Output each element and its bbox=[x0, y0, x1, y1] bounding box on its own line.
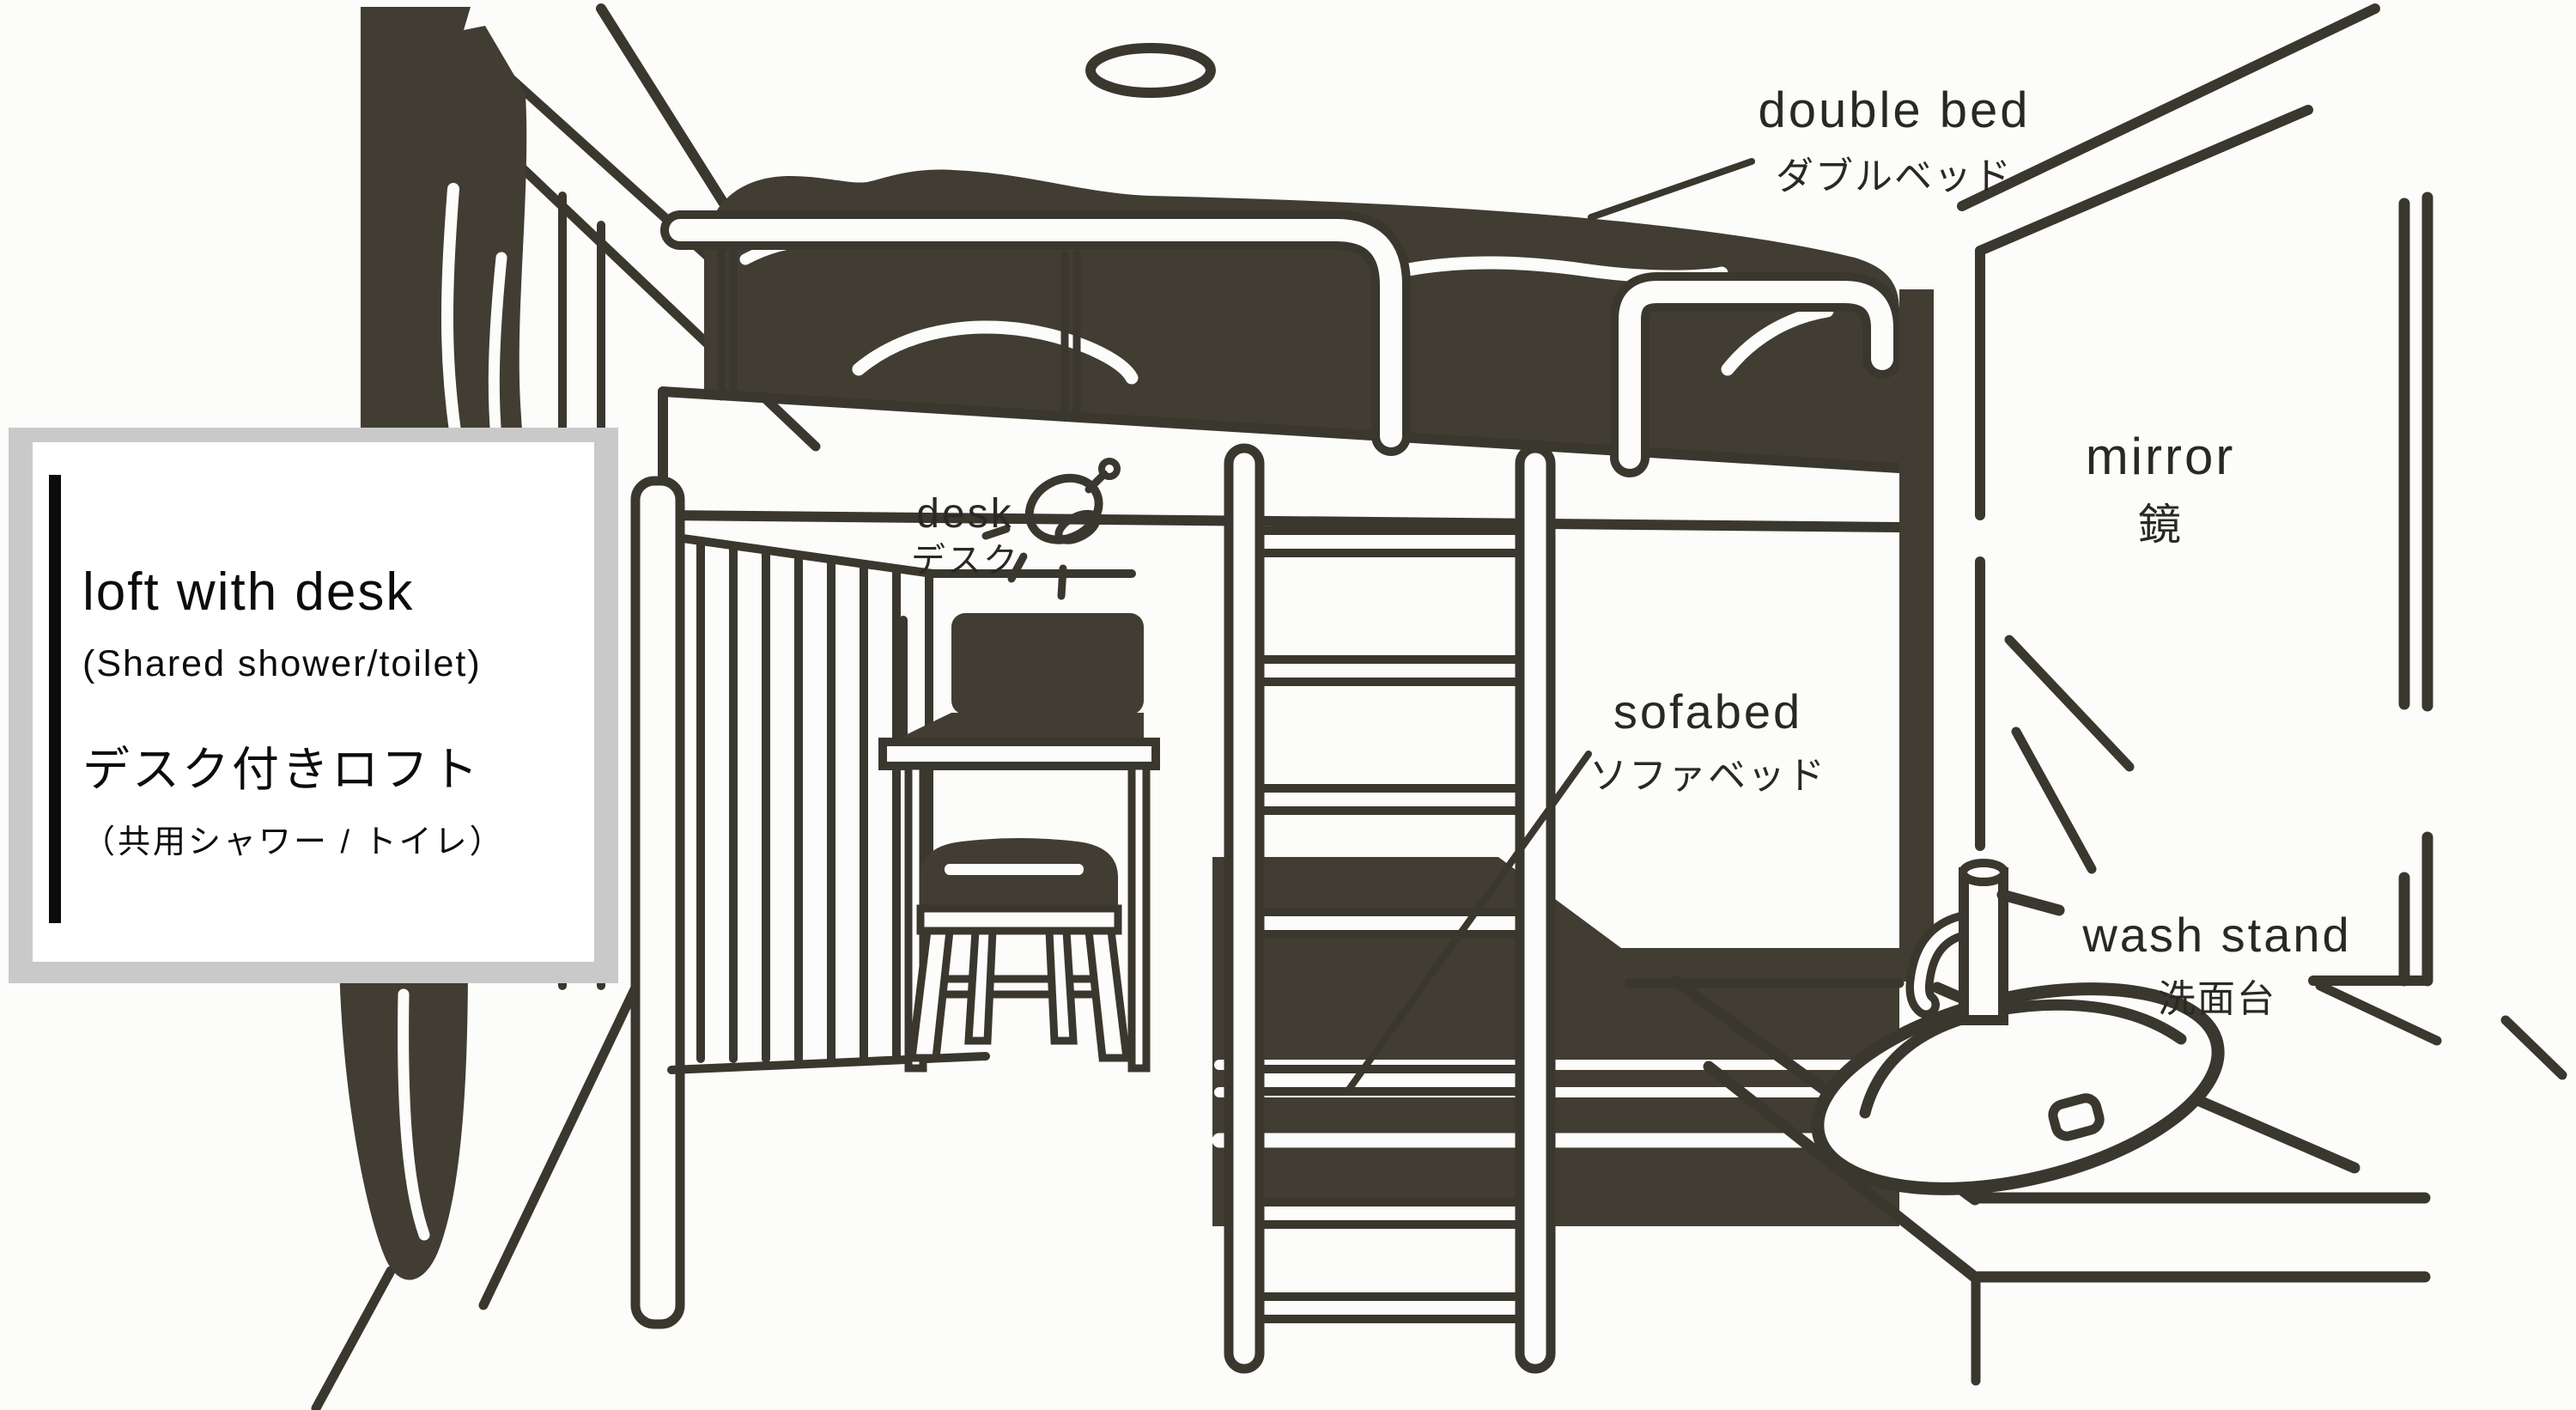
label-wash-stand: wash stand bbox=[2081, 908, 2351, 962]
loft-room-diagram: loft with desk (Shared shower/toilet) デス… bbox=[0, 0, 2576, 1410]
label-double-bed-ja: ダブルベッド bbox=[1776, 155, 2013, 198]
stool-leg bbox=[1049, 931, 1073, 1041]
ceiling-light-icon bbox=[1091, 48, 1211, 93]
label-mirror: mirror bbox=[2086, 428, 2236, 485]
stool-stretcher bbox=[933, 979, 1111, 994]
stool-leg bbox=[969, 931, 993, 1041]
room-illustration-page: loft with desk (Shared shower/toilet) デス… bbox=[0, 0, 2576, 1410]
title-card-panel bbox=[33, 442, 594, 962]
title-text: loft with desk bbox=[82, 562, 414, 622]
sink-drain bbox=[2050, 1096, 2102, 1139]
laptop bbox=[951, 613, 1144, 714]
stool-leg bbox=[1089, 931, 1127, 1058]
loft-post-left bbox=[635, 481, 680, 1324]
ladder bbox=[1229, 448, 1551, 1369]
stool-base bbox=[920, 909, 1118, 931]
label-wash-stand-ja: 洗面台 bbox=[2158, 978, 2276, 1020]
label-desk: desk bbox=[916, 491, 1013, 537]
mirror bbox=[1980, 110, 2308, 869]
subtitle-text-ja: （共用シャワー / トイレ） bbox=[82, 824, 505, 860]
title-accent-bar bbox=[49, 475, 61, 923]
subtitle-text: (Shared shower/toilet) bbox=[82, 643, 482, 684]
ladder-rail-left bbox=[1229, 448, 1260, 1369]
desk-leg-right bbox=[1132, 766, 1146, 1068]
label-desk-ja: デスク bbox=[911, 542, 1019, 580]
ladder-rail-right bbox=[1520, 448, 1551, 1369]
title-card: loft with desk (Shared shower/toilet) デス… bbox=[9, 428, 618, 983]
label-mirror-ja: 鏡 bbox=[2138, 501, 2183, 549]
stool-seat-highlight bbox=[945, 864, 1084, 875]
title-text-ja: デスク付きロフト bbox=[82, 743, 481, 796]
stool bbox=[912, 838, 1127, 1058]
label-sofabed: sofabed bbox=[1613, 684, 1802, 738]
ladder-rungs bbox=[1244, 531, 1534, 1319]
label-sofabed-ja: ソファベッド bbox=[1589, 755, 1826, 797]
loft-post-right bbox=[1899, 289, 1934, 982]
label-double-bed: double bed bbox=[1758, 82, 2030, 138]
